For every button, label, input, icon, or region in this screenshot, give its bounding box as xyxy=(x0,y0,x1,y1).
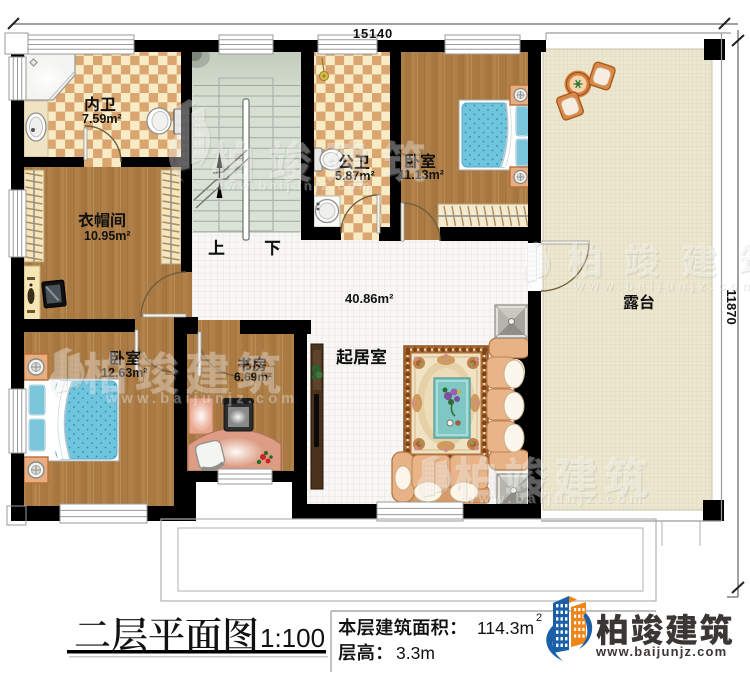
svg-text:www.baijunjz.com: www.baijunjz.com xyxy=(595,644,727,659)
svg-text:114.3m: 114.3m xyxy=(477,618,534,638)
svg-text:2: 2 xyxy=(536,612,542,624)
svg-text:10.95m²: 10.95m² xyxy=(84,229,131,243)
svg-text:40.86m²: 40.86m² xyxy=(345,291,394,306)
svg-text:www.baijunjz.com: www.baijunjz.com xyxy=(105,391,298,407)
svg-text:11870: 11870 xyxy=(724,289,739,324)
svg-text:15140: 15140 xyxy=(353,26,393,41)
svg-text:1:100: 1:100 xyxy=(260,623,325,653)
svg-text:www.baijunjz.com: www.baijunjz.com xyxy=(212,178,373,193)
svg-text:www.baijunjz.com: www.baijunjz.com xyxy=(463,490,646,506)
svg-text:3.3m: 3.3m xyxy=(396,643,435,663)
svg-text:7.59m²: 7.59m² xyxy=(82,112,122,126)
svg-text:www.baijunjz.com: www.baijunjz.com xyxy=(573,278,750,293)
